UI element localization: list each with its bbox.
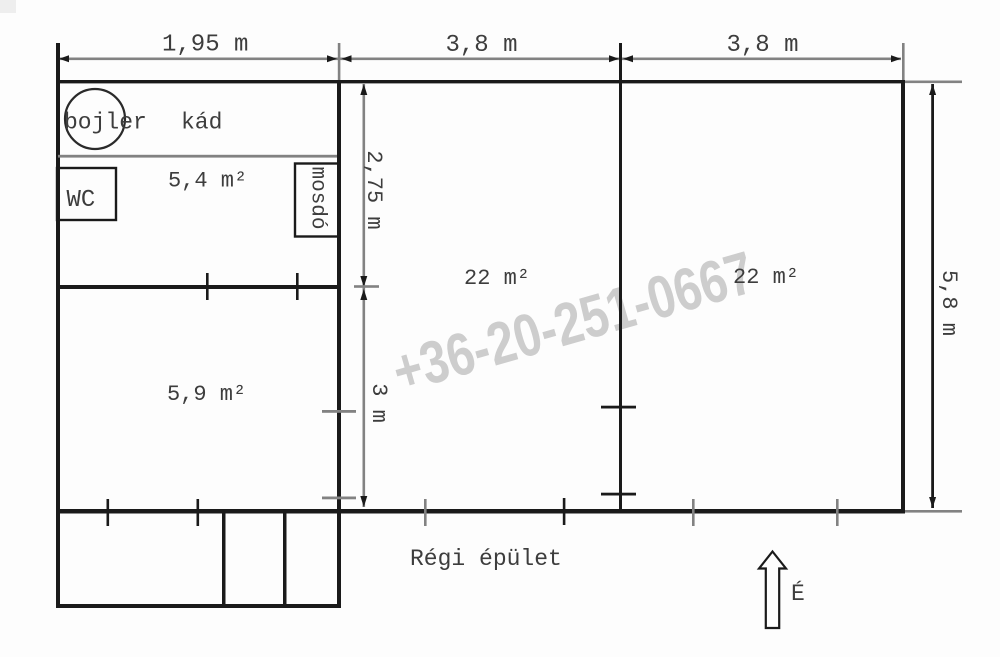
svg-text:kád: kád	[181, 110, 222, 136]
svg-text:3 m: 3 m	[366, 383, 391, 423]
svg-text:WC: WC	[67, 187, 96, 214]
svg-text:22 m²: 22 m²	[464, 266, 530, 291]
svg-text:É: É	[791, 580, 805, 607]
svg-text:2,75 m: 2,75 m	[361, 150, 386, 229]
svg-text:Régi épület: Régi épület	[410, 546, 562, 572]
svg-text:mosdó: mosdó	[306, 166, 329, 229]
svg-text:1,95 m: 1,95 m	[162, 32, 248, 59]
svg-text:3,8 m: 3,8 m	[727, 32, 799, 59]
svg-text:bojler: bojler	[64, 110, 147, 136]
svg-text:22 m²: 22 m²	[733, 265, 799, 290]
svg-text:5,9 m²: 5,9 m²	[167, 382, 246, 407]
svg-text:5,4 m²: 5,4 m²	[168, 169, 247, 194]
svg-text:3,8 m: 3,8 m	[446, 32, 518, 59]
svg-text:5,8 m: 5,8 m	[936, 270, 961, 336]
